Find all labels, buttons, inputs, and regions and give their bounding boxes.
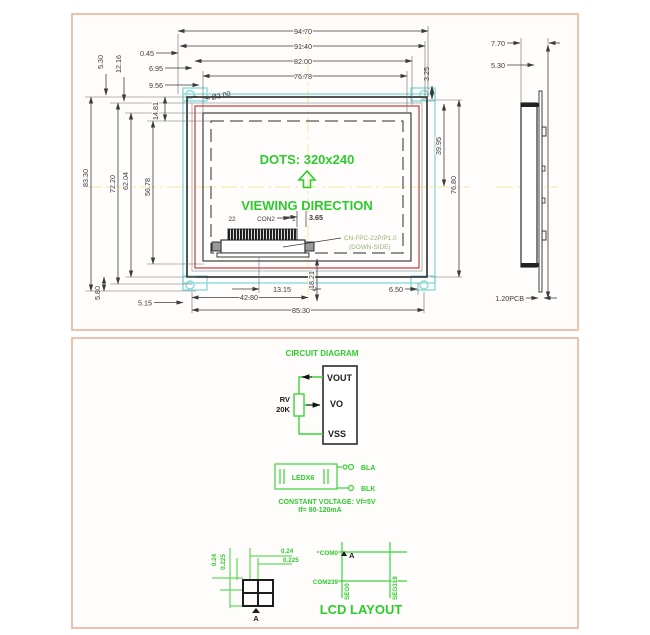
pot-name: RV xyxy=(280,395,291,404)
dots-label: DOTS: 320x240 xyxy=(260,152,355,167)
dim-side-530: 5.30 xyxy=(491,61,505,70)
seg0-label: SEG0 xyxy=(344,583,351,600)
dim-580: 5.80 xyxy=(93,286,102,300)
dim-9140: 91.40 xyxy=(294,42,312,51)
dim-120pcb: 1.20PCB xyxy=(495,294,524,303)
circuit-diagram-title: CIRCUIT DIAGRAM xyxy=(286,349,359,358)
dim-956: 9.56 xyxy=(149,81,163,90)
pin-vout: VOUT xyxy=(327,373,353,383)
origin-marker-a: A xyxy=(349,551,355,560)
dim-7680: 76.80 xyxy=(449,176,458,194)
com0-label: COM0 xyxy=(320,550,339,557)
dim-650: 6.50 xyxy=(389,285,403,294)
dim-515: 5.15 xyxy=(138,299,152,308)
seg319-label: SEG319 xyxy=(392,576,399,600)
dim-4280: 42.80 xyxy=(240,293,258,302)
pin-vo: VO xyxy=(330,399,343,409)
dim-9470: 94.70 xyxy=(294,27,312,36)
dim-5678: 56.78 xyxy=(143,178,152,196)
dim-7678: 76.78 xyxy=(294,72,312,81)
connector-type-line2: (DOWN-SIDE) xyxy=(349,244,391,251)
dot-pitch-width-dim: 0.225 xyxy=(283,557,299,564)
dim-8330: 83.30 xyxy=(81,169,90,187)
dim-7220: 72.20 xyxy=(108,175,117,193)
dim-325: 3.25 xyxy=(422,67,431,81)
dim-530: 5.30 xyxy=(96,55,105,69)
current-note: If= 90-120mA xyxy=(298,507,341,514)
com239-label: COM239 xyxy=(313,579,339,586)
dim-1821: 18.21 xyxy=(307,271,316,289)
dim-1216: 12.16 xyxy=(114,55,123,73)
dim-1315: 13.15 xyxy=(273,285,291,294)
section-marker-a: A xyxy=(253,614,259,623)
bla-label: BLA xyxy=(361,465,375,472)
dim-1481: 14.81 xyxy=(151,102,160,120)
connector-type-line1: CN-FPC-22P/P1.0 xyxy=(344,235,397,242)
dim-6204: 62.04 xyxy=(121,172,130,190)
dot-width-dim: 0.24 xyxy=(281,548,294,555)
connector-pitch-dim: 3.65 xyxy=(309,213,323,222)
viewing-direction-label: VIEWING DIRECTION xyxy=(241,198,372,213)
constant-voltage-note: CONSTANT VOLTAGE: Vf=5V xyxy=(278,499,375,506)
dim-695: 6.95 xyxy=(149,64,163,73)
dim-8200: 82.00 xyxy=(294,57,312,66)
pot-value: 20K xyxy=(276,405,290,414)
datasheet-drawing: DOTS: 320x240 VIEWING DIRECTION 22 CON2 … xyxy=(0,0,650,635)
lcd-module-datasheet: DOTS: 320x240 VIEWING DIRECTION 22 CON2 … xyxy=(0,0,650,635)
dim-3995: 39.95 xyxy=(434,137,443,155)
lcd-layout-title: LCD LAYOUT xyxy=(320,602,403,617)
dim-8530: 85.30 xyxy=(292,306,310,315)
blk-label: BLK xyxy=(361,486,375,493)
dot-pitch-height-dim: 0.225 xyxy=(220,554,227,570)
connector-name-label: CON2 xyxy=(257,216,275,223)
pin-vss: VSS xyxy=(328,429,346,439)
dot-height-dim: 0.24 xyxy=(211,553,218,566)
dim-770: 7.70 xyxy=(491,39,505,48)
connector-pin22-label: 22 xyxy=(228,216,236,223)
dim-045: 0.45 xyxy=(140,49,154,58)
led-box-label: LEDX6 xyxy=(292,475,315,482)
